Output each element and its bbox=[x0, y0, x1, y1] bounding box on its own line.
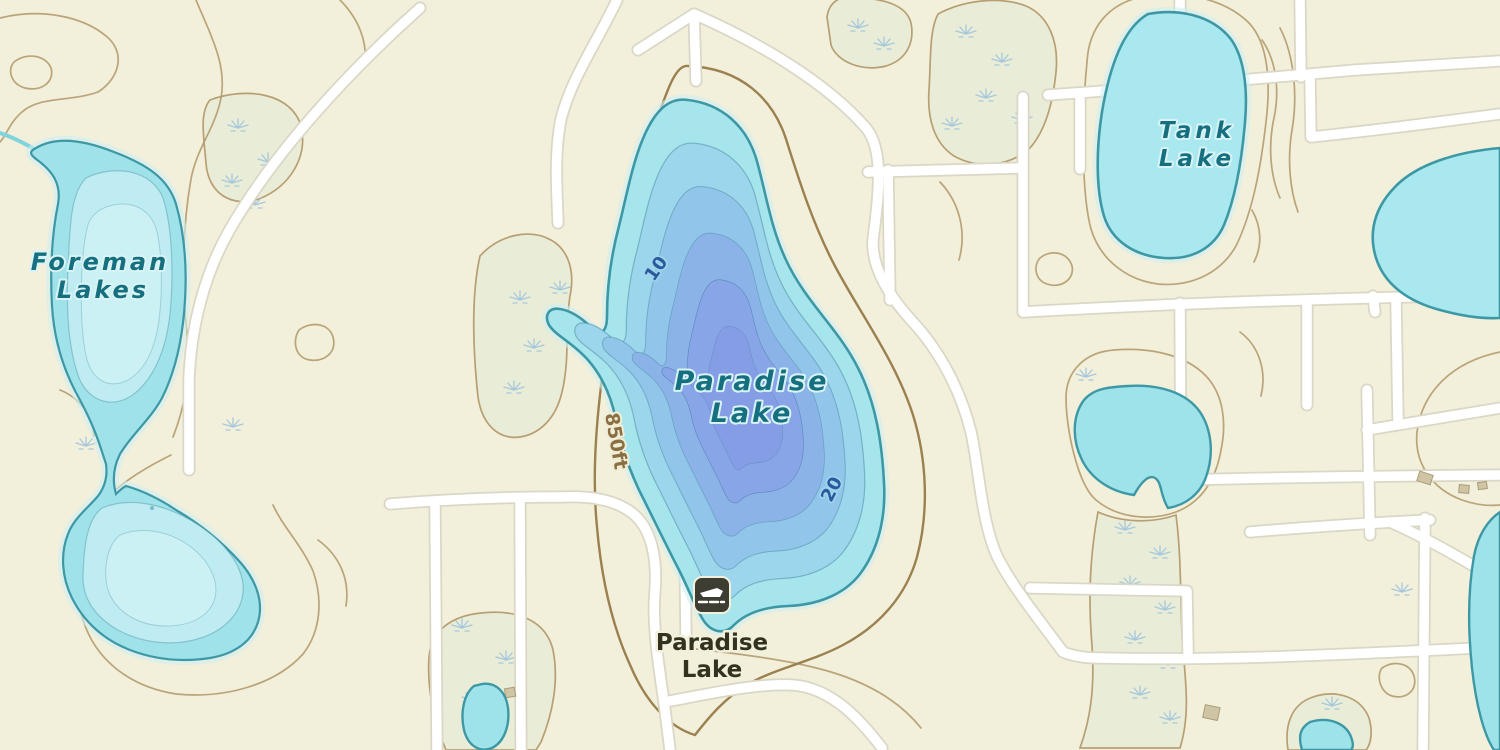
foreman-lakes-label-line2: Lakes bbox=[57, 276, 149, 304]
foreman-lakes-label-line1: Foreman bbox=[31, 248, 169, 276]
boat-launch-poi-label-line2[interactable]: Lake bbox=[682, 657, 742, 683]
paradise-lake-label-line1: Paradise bbox=[675, 366, 830, 397]
tank-lake-label-line1: Tank bbox=[1159, 118, 1235, 144]
pond-bottom-center bbox=[462, 684, 508, 750]
paradise-lake-label-line2: Lake bbox=[711, 398, 794, 429]
map-viewport[interactable]: Foreman Lakes Paradise Lake Tank Lake 85… bbox=[0, 0, 1500, 750]
tank-lake-label-line2: Lake bbox=[1159, 146, 1235, 172]
boat-launch-marker[interactable] bbox=[694, 577, 730, 613]
boat-launch-poi-label-line1[interactable]: Paradise bbox=[656, 630, 768, 656]
